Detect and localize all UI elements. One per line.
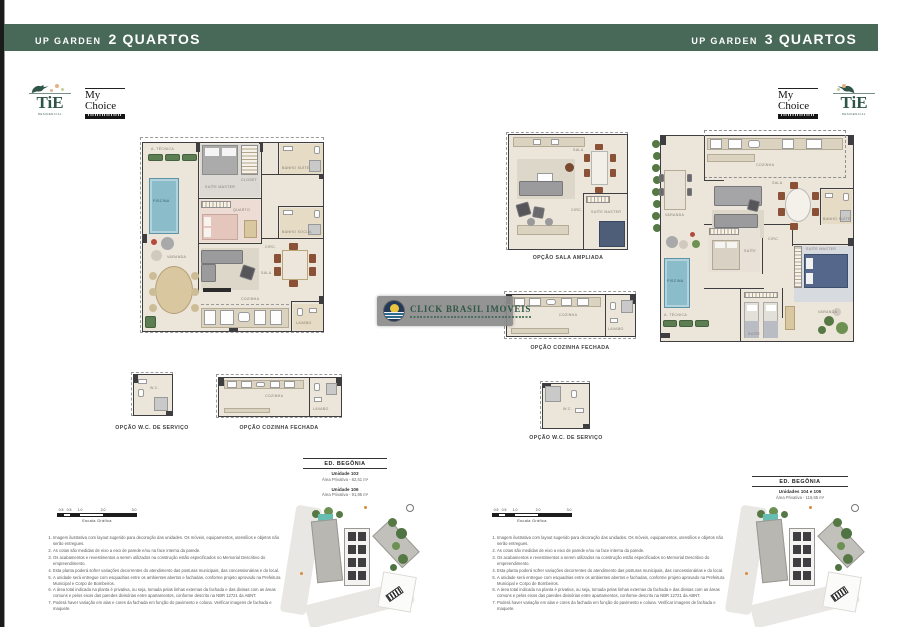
planter (148, 154, 163, 161)
disclaimer-item: Os acabamentos e revestimentos a serem u… (53, 555, 286, 567)
toilet (297, 308, 303, 316)
room-label: CLOSET (241, 179, 257, 183)
room-label: COZINHA (756, 164, 774, 168)
tree (390, 564, 397, 571)
room-label: SUÍTE MASTER (806, 248, 836, 252)
mychoice-logo-right: My Choice (778, 88, 818, 119)
tree (336, 511, 343, 518)
sink (138, 379, 147, 384)
shower (154, 397, 168, 411)
tree (837, 542, 845, 550)
sink (610, 318, 618, 323)
unit-name: Unidade 106 (303, 487, 387, 492)
banner-title-3q: UP GARDEN 3 QUARTOS (691, 24, 857, 51)
bed (599, 221, 625, 247)
chair (274, 267, 281, 276)
fridge (284, 381, 295, 388)
chair (790, 182, 798, 189)
banner-bold: 2 QUARTOS (108, 31, 200, 47)
leaf-icon (61, 88, 64, 91)
toilet (314, 210, 320, 218)
hedge (652, 164, 660, 172)
desk (517, 225, 569, 235)
disclaimer-list-right: Imagem ilustrativa com layout sugerido p… (490, 535, 730, 613)
dining-table (282, 250, 308, 280)
desk (785, 306, 795, 330)
sofa (519, 181, 563, 196)
tree (835, 564, 842, 571)
chair (527, 218, 535, 226)
chair (687, 188, 692, 196)
tree (843, 554, 853, 564)
room-label: SALA (573, 149, 583, 153)
room-label: CIRC. (571, 209, 582, 213)
room-label: A. TÉCNICA (151, 148, 174, 152)
planter (145, 316, 156, 328)
disclaimer-item: A unidade será entregue com esquadrias e… (497, 575, 730, 587)
appliance (782, 139, 794, 149)
shower (309, 160, 321, 172)
scale-bar-left: 0.5 0.5 1.0 2.0 3.0 Escala Gráfica (57, 508, 137, 523)
planter (679, 320, 693, 327)
bed-quarto (202, 214, 238, 240)
kitchen-sink (748, 140, 760, 148)
disclaimer-item: Os acabamentos e revestimentos a serem u… (497, 555, 730, 567)
bird-icon (30, 82, 52, 94)
plant (692, 240, 700, 248)
disclaimer-item: Esta planta poderá sofrer variações deco… (53, 568, 286, 574)
tree (398, 554, 408, 564)
option-label-cozinha-left: OPÇÃO COZINHA FECHADA (239, 425, 318, 431)
option-plan-wc-mid: W.C. (540, 381, 590, 429)
tie-logo-right: TiE RESIDENCIAL (830, 82, 878, 128)
banner-title-2q: UP GARDEN 2 QUARTOS (35, 24, 201, 51)
toilet (610, 302, 616, 310)
tree (396, 528, 407, 539)
chair (659, 174, 664, 182)
disclaimer-list-left: Imagem ilustrativa com layout sugerido p… (46, 535, 286, 613)
disclaimer-item: A área total indicada na planta é privat… (497, 587, 730, 599)
fridge (806, 139, 822, 149)
hedge (652, 140, 660, 148)
disclaimer-item: Poderá haver variação em alas e cores da… (53, 600, 286, 612)
chair (778, 208, 785, 216)
chair (687, 174, 692, 182)
toilet (314, 146, 320, 154)
tree (388, 518, 397, 527)
bed-single (763, 302, 778, 338)
watermark: CLICK BRASIL IMOVEIS (377, 296, 513, 326)
disclaimer-item: A unidade será entregue com esquadrias e… (53, 575, 286, 587)
wardrobe (794, 246, 802, 288)
sink (825, 193, 833, 198)
plant (824, 316, 834, 326)
hedge (653, 224, 661, 232)
room-label: BANHO SUÍTE (823, 218, 851, 222)
option-label-wc-left: OPÇÃO W.C. DE SERVIÇO (115, 425, 188, 431)
kitchen-sink (546, 299, 556, 305)
room-label: SUÍTE MASTER (205, 186, 235, 190)
chair (595, 144, 603, 150)
shower (545, 386, 561, 402)
chair (610, 154, 616, 162)
sink (283, 210, 293, 215)
bed-suite (712, 240, 740, 270)
plant-pot (690, 232, 695, 237)
kitchen-sink (238, 312, 250, 322)
chair (149, 288, 157, 296)
lounge-chair (666, 236, 678, 248)
marker-dot (809, 506, 812, 509)
flower-icon (55, 84, 59, 88)
room-label: COZINHA (265, 395, 283, 399)
option-plan-wc-left: W.C. (131, 372, 173, 416)
unit-name: Unidade 103 (303, 471, 387, 476)
appliance (204, 310, 216, 325)
toilet (843, 193, 849, 201)
tie-wordmark: TiE (26, 94, 74, 111)
sofa (201, 250, 243, 264)
chair (191, 304, 199, 312)
room-label: W.C. (150, 387, 159, 391)
unit-area: Área Privativa - 91,85 m² (303, 492, 387, 497)
toilet (138, 389, 144, 397)
disclaimer-item: Esta planta poderá sofrer variações deco… (497, 568, 730, 574)
building-block (311, 519, 343, 583)
site-plan-right (733, 498, 865, 622)
dining-table-round (785, 188, 811, 222)
building-block-windows (344, 528, 370, 586)
room-label: COZINHA (559, 314, 577, 318)
wardrobe (709, 228, 739, 235)
room-label: SALA (261, 272, 271, 276)
lounge-chair (151, 250, 162, 261)
chair (309, 267, 316, 276)
chair (309, 254, 316, 263)
chair (812, 192, 819, 200)
disclaimer-item: A área total indicada na planta é privat… (53, 587, 286, 599)
room-label: LAVABO (608, 328, 624, 332)
appliance (227, 381, 237, 388)
room-label: QUARTO (233, 209, 250, 213)
watermark-name: CLICK BRASIL IMOVEIS (410, 304, 531, 314)
room-label: VARANDA (665, 214, 684, 218)
unit-info-left: ED. BEGÔNIA Unidade 103 Área Privativa -… (303, 458, 387, 497)
marker-dot (300, 572, 303, 575)
shower (621, 300, 633, 313)
wardrobe (201, 201, 231, 208)
mychoice-logo-left: My Choice (85, 88, 125, 119)
room-label: CIRC. (265, 246, 276, 250)
floorplan-3-quartos: COZINHA VARANDA SALA BANHO SUÍTE SUÍTE C… (652, 128, 858, 348)
hedge (653, 200, 661, 208)
shower (326, 383, 337, 395)
chair (545, 218, 553, 226)
chair (812, 208, 819, 216)
room-label: CIRC. (768, 238, 779, 242)
chair (149, 304, 157, 312)
appliance (561, 298, 572, 306)
plant (818, 326, 826, 334)
room-label: A. TÉCNICA (664, 314, 687, 318)
room-label: VARANDA (167, 256, 186, 260)
planter (663, 320, 677, 327)
room-label: W.C. (563, 408, 572, 412)
banner-bold: 3 QUARTOS (765, 31, 857, 47)
disclaimer-item: Imagem ilustrativa com layout sugerido p… (53, 535, 286, 547)
chair (610, 169, 616, 177)
toilet (314, 383, 320, 391)
verandah-table (664, 170, 686, 210)
wardrobe (744, 292, 778, 298)
brochure-page: UP GARDEN 2 QUARTOS UP GARDEN 3 QUARTOS … (0, 0, 900, 627)
option-label-wc-mid: OPÇÃO W.C. DE SERVIÇO (529, 435, 602, 441)
disclaimer-item: As cotas são medidas de eixo a eixo de p… (497, 548, 730, 554)
lounge-chair (161, 237, 174, 250)
appliance (270, 381, 280, 388)
disclaimer-item: Imagem ilustrativa com layout sugerido p… (497, 535, 730, 547)
scale-label: Escala Gráfica (492, 518, 572, 523)
kitchen-island (707, 154, 755, 162)
bench (511, 328, 569, 334)
sink (575, 408, 584, 413)
watermark-tagline (410, 316, 531, 318)
room-label: SUÍTE (748, 333, 760, 337)
chair (584, 169, 590, 177)
click-brasil-logo-icon (383, 300, 405, 322)
chair (274, 254, 281, 263)
stove (241, 381, 252, 388)
tree (392, 542, 400, 550)
leaf-icon (837, 88, 840, 91)
sink (309, 308, 317, 313)
mychoice-bar (85, 114, 125, 119)
kitchen-sink (256, 382, 265, 387)
planter (165, 154, 180, 161)
north-arrow-icon (406, 504, 414, 512)
option-plan-sala-ampliada: SALA CIRC. SUÍTE MASTER (506, 132, 628, 250)
appliance (710, 139, 722, 149)
option-plan-cozinha-left: COZINHA LAVABO (216, 374, 342, 418)
banner-prefix: UP GARDEN (691, 36, 757, 46)
room-label: SUÍTE MASTER (591, 211, 621, 215)
mychoice-bar (778, 114, 818, 119)
building-block (756, 519, 788, 583)
desk (244, 220, 257, 238)
header-banner: UP GARDEN 2 QUARTOS UP GARDEN 3 QUARTOS (4, 24, 878, 51)
tree (781, 511, 788, 518)
toilet (571, 390, 577, 398)
unit-info-right: ED. BEGÔNIA Unidades 104 e 105 Área Priv… (752, 476, 848, 500)
tv (203, 288, 231, 292)
chair (659, 188, 664, 196)
room-label: LAVABO (313, 408, 329, 412)
building-block-windows (789, 528, 815, 586)
closet-wardrobe (241, 145, 258, 175)
appliance (254, 310, 266, 325)
tie-subtitle: RESIDENCIAL (26, 113, 74, 116)
unit-area: Área Privativa - 82,51 m² (303, 477, 387, 482)
bench (224, 408, 270, 413)
site-plan-left (288, 498, 420, 622)
option-label-cozinha-mid: OPÇÃO COZINHA FECHADA (530, 345, 609, 351)
stove (220, 310, 234, 325)
chair (289, 243, 298, 250)
banner-prefix: UP GARDEN (35, 36, 101, 46)
room-label: COZINHA (241, 298, 259, 302)
lounge-chair (679, 240, 688, 249)
tie-logo-left: TiE RESIDENCIAL (26, 82, 74, 128)
north-arrow-icon (851, 504, 859, 512)
scale-label: Escala Gráfica (57, 518, 137, 523)
flower-icon (842, 84, 846, 88)
chair (790, 223, 798, 230)
scale-bar-right: 0.5 0.5 1.0 2.0 3.0 Escala Gráfica (492, 508, 572, 523)
room-label: PISCINA (153, 200, 169, 204)
unit-name: Unidades 104 e 105 (752, 489, 848, 494)
marker-dot (745, 572, 748, 575)
planter (695, 320, 709, 327)
chair (149, 272, 157, 280)
mychoice-line2: Choice (85, 101, 125, 112)
chair (191, 288, 199, 296)
chair (191, 272, 199, 280)
plant-pot (151, 239, 157, 245)
armchair (532, 206, 545, 219)
bed-suite-master (804, 254, 848, 288)
room-label: PISCINA (667, 280, 683, 284)
fridge (270, 310, 282, 325)
pool (149, 178, 179, 234)
stove (728, 139, 742, 149)
tree (833, 518, 842, 527)
room-label: SUÍTE (744, 250, 756, 254)
marker-dot (364, 506, 367, 509)
tree (841, 528, 852, 539)
chair (289, 280, 298, 287)
plant (836, 322, 848, 334)
sofa-chaise (201, 264, 216, 282)
sink (283, 146, 293, 151)
room-label: LAVABO (296, 322, 312, 326)
dining-table (591, 151, 608, 185)
sofa (714, 214, 758, 228)
plant-pot (565, 163, 574, 172)
room-label: BANHO SUÍTE (282, 167, 310, 171)
dining-table-oval (155, 266, 193, 314)
hedge (652, 212, 660, 220)
sink (314, 397, 322, 402)
room-label: SALA (772, 182, 782, 186)
option-label-sala-ampliada: OPÇÃO SALA AMPLIADA (533, 255, 604, 261)
room-label: VARANDA (818, 311, 837, 315)
sideboard (513, 137, 585, 147)
fridge (577, 298, 589, 306)
chair (584, 154, 590, 162)
chair (778, 192, 785, 200)
building-title: ED. BEGÔNIA (752, 476, 848, 485)
planter (182, 154, 197, 161)
disclaimer-item: Poderá haver variação em alas e cores da… (497, 600, 730, 612)
hedge (653, 152, 661, 160)
floorplan-2-quartos: A. TÉCNICA PISCINA VARANDA CLOSET SUÍTE … (140, 137, 324, 333)
flower-icon (50, 89, 53, 92)
room-label: BANHO SOCIAL (282, 231, 313, 235)
wardrobe (586, 196, 610, 203)
disclaimer-item: As cotas são medidas de eixo a eixo de p… (53, 548, 286, 554)
building-title: ED. BEGÔNIA (303, 458, 387, 467)
bed-suite-master (202, 145, 238, 175)
